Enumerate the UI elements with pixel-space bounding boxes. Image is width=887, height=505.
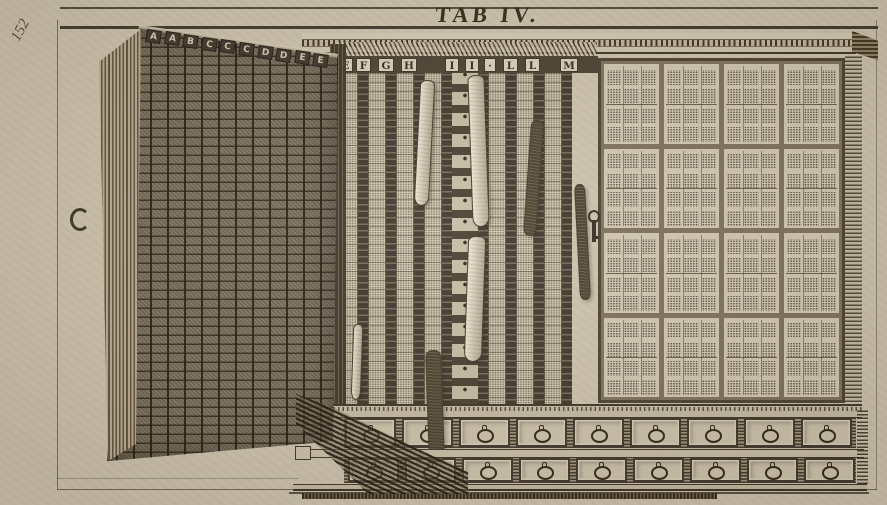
cornice-molding (302, 33, 860, 40)
specimen-pane (664, 149, 719, 229)
drawer-ring-pull-icon (762, 429, 779, 443)
drawer-ring-pull-icon (477, 429, 494, 443)
drawer (519, 458, 570, 482)
drawer-ring-pull-icon (651, 466, 668, 480)
specimen-sheet (787, 66, 801, 142)
drawer (516, 418, 567, 447)
door-letter-tile: E (294, 50, 311, 65)
specimen-pane (604, 64, 659, 144)
rack-ladder-strip (386, 73, 396, 407)
specimen-sheet (641, 320, 656, 396)
rack-label-strip (368, 73, 386, 407)
specimen-sheet (683, 151, 698, 227)
specimen-pane (604, 233, 659, 313)
rack-ladder-strip (562, 73, 572, 407)
specimen-sheet (803, 320, 818, 396)
specimen-sheet (821, 66, 836, 142)
specimen-sheet (623, 235, 638, 311)
specimen-pane (724, 64, 779, 144)
specimen-sheet (821, 151, 836, 227)
specimen-sheet (743, 151, 758, 227)
rack-letter-tile: L (503, 58, 518, 72)
specimen-sheet (607, 151, 621, 227)
specimen-pane (604, 318, 659, 398)
door-letter-tile: A (164, 31, 181, 46)
specimen-sheet (667, 320, 681, 396)
drawer (804, 458, 855, 482)
drawer (459, 418, 510, 447)
drawer (573, 418, 624, 447)
specimen-sheet (803, 66, 818, 142)
specimen-sheet (727, 151, 741, 227)
drawer-ring-pull-icon (822, 466, 839, 480)
drawer (633, 458, 684, 482)
door-letter-tile: C (201, 37, 218, 52)
rack-ladder-strip (442, 73, 452, 407)
specimen-sheet (821, 320, 836, 396)
specimen-sheet (761, 66, 776, 142)
specimen-pane (664, 318, 719, 398)
rack-letter-tile: G (378, 58, 394, 72)
folio-number: 152 (4, 8, 39, 53)
specimen-sheet (701, 66, 716, 142)
rack-label-strip (488, 73, 506, 407)
specimen-sheet (803, 151, 818, 227)
rack-letter-tile: H (401, 58, 417, 72)
drawer (690, 458, 741, 482)
drawer (801, 418, 852, 447)
drawer-ring-pull-icon (591, 429, 608, 443)
specimen-pane (784, 318, 839, 398)
drawer-ring-pull-icon (537, 466, 554, 480)
drawer-ring-pull-icon (765, 466, 782, 480)
drawer (576, 458, 627, 482)
specimen-pane (664, 64, 719, 144)
specimen-sheet (743, 320, 758, 396)
rack-letter-tile: L (525, 58, 540, 72)
door-letter-tile: B (182, 34, 199, 49)
specimen-sheet (667, 151, 681, 227)
specimen-sheet (761, 151, 776, 227)
specimen-sheet (641, 151, 656, 227)
specimen-sheet (641, 235, 656, 311)
specimen-pane (604, 149, 659, 229)
door-letter-tile: D (257, 45, 274, 60)
specimen-sheet (727, 320, 741, 396)
base-right-shading (857, 410, 868, 484)
specimen-sheet (727, 235, 741, 311)
specimen-pane (724, 318, 779, 398)
hanging-key-icon (588, 210, 600, 248)
specimen-sheet (787, 235, 801, 311)
specimen-sheet (701, 235, 716, 311)
door-edge (99, 29, 141, 461)
rack-letter-tile: · (484, 58, 496, 72)
specimen-sheet (607, 235, 621, 311)
specimen-sheet (667, 235, 681, 311)
specimen-sheet (787, 320, 801, 396)
specimen-sheet (727, 66, 741, 142)
specimen-sheet (623, 66, 638, 142)
drawer-ring-pull-icon (708, 466, 725, 480)
door-letter-tile: E (313, 53, 330, 68)
ground-shadow (302, 493, 717, 499)
plate-title: TAB IV. (399, 3, 577, 27)
specimen-pane (784, 64, 839, 144)
drawer-ring-pull-icon (534, 429, 551, 443)
drawer (630, 418, 681, 447)
door-letter-tile: C (238, 42, 255, 57)
rack-ladder-strip (506, 73, 516, 407)
rack-letter-tile: F (356, 58, 371, 72)
rack-letter-tile: I (445, 58, 459, 72)
specimen-sheet (683, 235, 698, 311)
plate-border-right (876, 20, 877, 490)
door-letter-tile: A (145, 29, 162, 44)
specimen-sheet (683, 320, 698, 396)
specimen-sheet (683, 66, 698, 142)
specimen-sheet (787, 151, 801, 227)
specimen-pane (724, 233, 779, 313)
drawer-ring-pull-icon (705, 429, 722, 443)
plate-border-left (57, 20, 58, 490)
drawer-ring-pull-icon (594, 466, 611, 480)
specimen-pane (724, 149, 779, 229)
specimen-sheet (743, 66, 758, 142)
specimen-sheet (641, 66, 656, 142)
specimen-pane (664, 233, 719, 313)
rack-label-strip (544, 73, 562, 407)
door-letter-tile: D (275, 48, 292, 63)
base-rail-step (295, 446, 311, 460)
drawer (687, 418, 738, 447)
cabinet-right-side-shading (845, 56, 862, 402)
specimen-sheet (743, 235, 758, 311)
rack-frieze (337, 42, 597, 56)
rack-letter-tile: I (465, 58, 479, 72)
specimen-sheet (701, 320, 716, 396)
rack-label-strip (396, 73, 414, 407)
specimen-sheet (761, 235, 776, 311)
specimen-pane (784, 233, 839, 313)
drawer (462, 458, 513, 482)
specimen-sheet (667, 66, 681, 142)
drawer (744, 418, 795, 447)
specimen-sheet (607, 320, 621, 396)
drawer-ring-pull-icon (819, 429, 836, 443)
specimen-sheet (803, 235, 818, 311)
specimen-sheet (761, 320, 776, 396)
specimen-sheet (607, 66, 621, 142)
key-bit (595, 236, 599, 239)
specimen-sheet (701, 151, 716, 227)
specimen-pane (784, 149, 839, 229)
base-top-rail (302, 404, 862, 418)
ground-line (57, 478, 299, 479)
door-letter-tile: C (220, 39, 237, 54)
drawer-ring-pull-icon (480, 466, 497, 480)
drawer-ring-pull-icon (648, 429, 665, 443)
specimen-sheet (623, 151, 638, 227)
rack-letter-tile: M (560, 58, 578, 72)
drawer (747, 458, 798, 482)
engraving-plate: TAB IV. 152 EFGHII·LLM AABCCCDDEE (0, 0, 887, 505)
specimen-sheet (821, 235, 836, 311)
specimen-sheet (623, 320, 638, 396)
specimen-sheet-panel (598, 58, 845, 403)
door-ring-handle-icon (70, 208, 90, 231)
